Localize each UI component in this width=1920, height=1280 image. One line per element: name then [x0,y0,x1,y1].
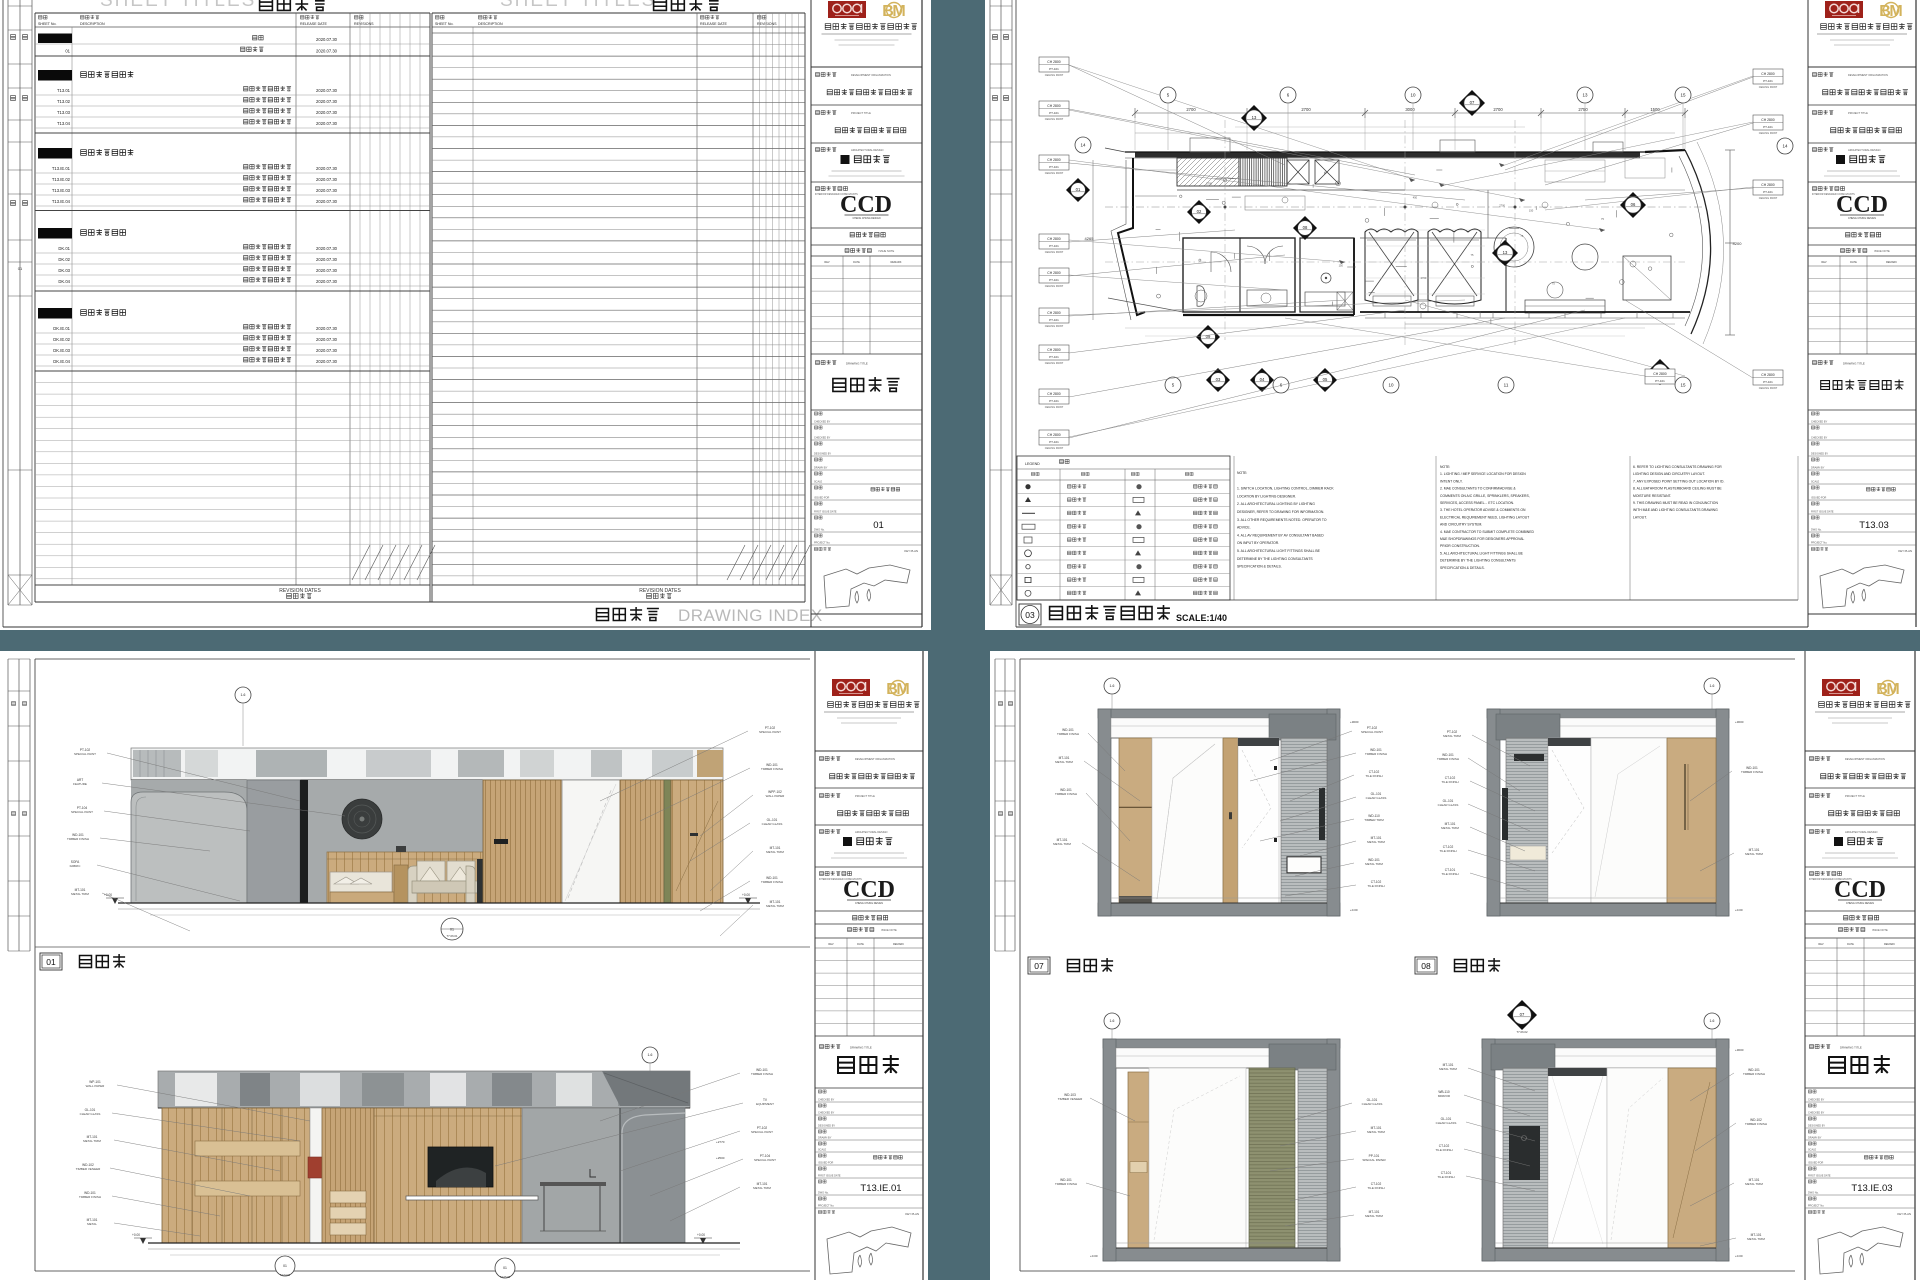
svg-text:TIMBER FINISH: TIMBER FINISH [1055,792,1077,796]
svg-text:REVISION DATES: REVISION DATES [279,588,321,594]
svg-text:SERVICES, ACCESS PANEL... ETC: SERVICES, ACCESS PANEL... ETC LOCATION. [1440,501,1514,505]
svg-text:PT-101: PT-101 [1763,125,1773,129]
svg-text:CH 2800: CH 2800 [1761,118,1774,122]
svg-text:DRAWING TITLE: DRAWING TITLE [846,362,868,366]
svg-text:CHECKED BY: CHECKED BY [1808,1099,1825,1102]
svg-text:SCALE: SCALE [1811,481,1820,484]
svg-text:03: 03 [1025,610,1035,620]
svg-text:CH 2800: CH 2800 [1047,392,1060,396]
svg-text:NOTE:: NOTE: [1440,465,1450,469]
svg-text:5. ALL ARCHITECTURAL LIGHT FIT: 5. ALL ARCHITECTURAL LIGHT FITTINGS SHAL… [1237,549,1321,553]
svg-text:4200: 4200 [1733,241,1743,246]
svg-text:DK.02: DK.02 [58,257,70,262]
svg-text:PROJECT No.: PROJECT No. [814,542,831,545]
svg-text:CEILING PAINT: CEILING PAINT [1759,386,1778,390]
svg-text:13: 13 [1582,93,1588,98]
svg-text:01: 01 [65,49,70,54]
svg-text:13: 13 [1503,250,1508,255]
svg-text:KEY PLAN: KEY PLAN [905,1212,919,1216]
svg-text:CCD: CCD [1834,877,1886,903]
svg-text:+2500: +2500 [716,1156,725,1160]
svg-text:SPECIAL PAINT: SPECIAL PAINT [751,1130,773,1134]
svg-text:PT-101: PT-101 [1049,244,1059,248]
svg-text:ADVICE.: ADVICE. [1237,526,1251,530]
svg-text:8. ALL BATHROOM PLASTERBOARD C: 8. ALL BATHROOM PLASTERBOARD CEILING MUS… [1633,487,1722,491]
svg-text:METAL TRIM: METAL TRIM [1365,1214,1383,1218]
svg-text:T13.IE.02: T13.IE.02 [52,177,71,182]
svg-text:METAL TRIM: METAL TRIM [1367,840,1385,844]
svg-text:REMARK: REMARK [890,260,901,264]
svg-text:2. ALL ARCHITECTURAL LIGHTING: 2. ALL ARCHITECTURAL LIGHTING BY LIGHTIN… [1237,502,1315,506]
svg-text:DEVELOPMENT ORGANIZATION: DEVELOPMENT ORGANIZATION [855,757,895,761]
svg-text:CCD: CCD [1836,192,1888,218]
svg-text:CLEAR GLASS: CLEAR GLASS [762,822,783,826]
svg-text:REV: REV [1818,942,1824,946]
svg-text:4. ALL AV REQUIREMENT BY AV CO: 4. ALL AV REQUIREMENT BY AV CONSULTANT B… [1237,533,1324,537]
svg-text:DESCRIPTION: DESCRIPTION [80,22,105,26]
svg-text:+2770: +2770 [716,1140,725,1144]
svg-text:ELECTRICAL REQUIREMENT NEED, L: ELECTRICAL REQUIREMENT NEED, LIGHTING LA… [1440,515,1529,519]
svg-text:DRAWING INDEX: DRAWING INDEX [678,606,823,625]
svg-text:+3000: +3000 [1735,1048,1744,1052]
svg-text:SPECIFICATION & DETAILS.: SPECIFICATION & DETAILS. [1237,565,1282,569]
svg-text:DRAWING TITLE: DRAWING TITLE [850,1046,872,1050]
svg-text:METAL: METAL [87,1222,97,1226]
svg-text:KEY PLAN: KEY PLAN [904,549,918,553]
svg-text:RELEASE DATE: RELEASE DATE [700,22,727,26]
svg-text:T13.IE.01: T13.IE.01 [52,166,71,171]
svg-text:+0.00: +0.00 [1090,1254,1098,1258]
svg-text:SHEET No.: SHEET No. [435,22,454,26]
svg-text:METAL TRIM: METAL TRIM [1367,1130,1385,1134]
svg-text:SHEET TITLES: SHEET TITLES [100,0,256,11]
svg-text:CEILING PAINT: CEILING PAINT [1045,117,1064,121]
svg-text:2020.07.30: 2020.07.30 [316,268,338,273]
svg-text:CH 2800: CH 2800 [1653,372,1666,376]
svg-text:4. MAE CONTRACTOR TO SUBMIT CO: 4. MAE CONTRACTOR TO SUBMIT COMPLETE COM… [1440,530,1534,534]
svg-text:15: 15 [1680,93,1686,98]
svg-text:TILE FINISH: TILE FINISH [1367,1186,1384,1190]
svg-text:TILE FINISH: TILE FINISH [1365,774,1382,778]
svg-text:SPECIAL PAINT: SPECIAL PAINT [74,752,96,756]
svg-text:METAL TRIM: METAL TRIM [1443,734,1461,738]
svg-text:DEVELOPMENT ORGANIZATION: DEVELOPMENT ORGANIZATION [1848,73,1888,77]
svg-text:2020.07.30: 2020.07.30 [316,348,338,353]
svg-text:DRAWN BY: DRAWN BY [814,467,828,470]
svg-text:15: 15 [1680,383,1686,388]
svg-text:CH 2800: CH 2800 [1761,72,1774,76]
svg-text:TIMBER FINISH: TIMBER FINISH [1055,1182,1077,1186]
svg-text:TIMBER FINISH: TIMBER FINISH [67,837,89,841]
svg-text:CH 2800: CH 2800 [1047,271,1060,275]
svg-text:ARCHITECTURAL DESIGN: ARCHITECTURAL DESIGN [1848,148,1880,152]
svg-text:2700: 2700 [1493,107,1503,112]
svg-text:DK.IE.01: DK.IE.01 [53,326,70,331]
svg-text:INTENT ONLY.: INTENT ONLY. [1440,479,1463,483]
svg-text:TIMBER FINISH: TIMBER FINISH [1743,1072,1765,1076]
svg-text:DWG No.: DWG No. [1808,1192,1819,1195]
svg-text:TIMBER FINISH: TIMBER FINISH [1741,770,1763,774]
svg-text:14: 14 [1782,144,1788,149]
svg-text:1-6: 1-6 [1710,684,1715,688]
svg-text:PROJECT TITLE: PROJECT TITLE [1845,794,1865,798]
svg-text:KEY PLAN: KEY PLAN [1897,1212,1911,1216]
svg-text:METAL TRIM: METAL TRIM [753,1186,771,1190]
svg-text:1-6: 1-6 [241,693,246,697]
svg-text:REVISIONS: REVISIONS [757,22,777,26]
svg-text:ARCHITECTURAL DESIGN: ARCHITECTURAL DESIGN [1845,830,1877,834]
svg-text:PT-101: PT-101 [1049,318,1059,322]
svg-text:DK.IE.04: DK.IE.04 [53,359,70,364]
svg-text:13: 13 [1252,115,1257,120]
svg-text:TILE FINISH: TILE FINISH [1441,780,1458,784]
svg-text:WITH M&E AND LIGHTING CONSULTA: WITH M&E AND LIGHTING CONSULTANTS DRAWIN… [1633,508,1718,512]
svg-text:SPECIAL PAPER: SPECIAL PAPER [1362,1158,1386,1162]
svg-text:PROJECT No.: PROJECT No. [1808,1205,1825,1208]
svg-text:TIMBER FINISH: TIMBER FINISH [79,1195,101,1199]
svg-text:2750: 2750 [1578,107,1588,112]
svg-text:01: 01 [18,266,23,271]
svg-text:T13.03: T13.03 [57,110,71,115]
svg-text:PROJECT No.: PROJECT No. [818,1205,835,1208]
svg-text:01: 01 [503,1266,507,1270]
svg-text:PT-101: PT-101 [1763,190,1773,194]
svg-text:DK.01: DK.01 [58,246,70,251]
svg-text:2700: 2700 [1206,181,1212,185]
svg-text:2020.07.30: 2020.07.30 [316,88,338,93]
svg-text:2020.07.30: 2020.07.30 [316,110,338,115]
svg-text:DWG No.: DWG No. [818,1192,829,1195]
svg-text:LIGHTING DESIGN AND CIRCUITRY: LIGHTING DESIGN AND CIRCUITRY LAYOUT. [1633,472,1705,476]
svg-text:2020.07.30: 2020.07.30 [316,199,338,204]
svg-text:+3000: +3000 [1350,720,1359,724]
svg-text:CLEAR GLASS: CLEAR GLASS [1366,796,1387,800]
svg-text:CLEAR GLASS: CLEAR GLASS [80,1112,101,1116]
svg-text:TIMBER FINISH: TIMBER FINISH [751,1072,773,1076]
svg-text:5. ALL ARCHITECTURAL LIGHT FIT: 5. ALL ARCHITECTURAL LIGHT FITTINGS SHAL… [1440,551,1524,555]
svg-text:DATE: DATE [853,260,860,264]
svg-text:ISSUED FOR: ISSUED FOR [1811,497,1826,500]
svg-text:2020.07.30: 2020.07.30 [316,99,338,104]
svg-text:METAL TRIM: METAL TRIM [1439,1067,1457,1071]
svg-text:CEILING PAINT: CEILING PAINT [1759,131,1778,135]
svg-text:CH 2800: CH 2800 [1761,183,1774,187]
svg-text:CCD: CCD [843,877,895,903]
svg-text:PROJECT TITLE: PROJECT TITLE [851,111,871,115]
svg-text:REMARK: REMARK [1886,260,1897,264]
svg-text:ISSUE NOTE: ISSUE NOTE [879,249,895,253]
svg-text:T13.01: T13.01 [57,88,71,93]
svg-text:LAYOUT.: LAYOUT. [1633,515,1647,519]
svg-text:FIRST ISSUE DATE: FIRST ISSUE DATE [1808,1175,1831,1178]
svg-text:METAL TRIM: METAL TRIM [1053,842,1071,846]
svg-text:CEILING PAINT: CEILING PAINT [1045,361,1064,365]
svg-text:SCALE: SCALE [1808,1149,1817,1152]
svg-text:2700: 2700 [1301,107,1311,112]
svg-text:ISSUE NOTE: ISSUE NOTE [1872,928,1888,932]
svg-text:+3000: +3000 [1735,720,1744,724]
svg-text:EQUIPMENT: EQUIPMENT [756,1102,774,1106]
svg-text:DWG No.: DWG No. [814,529,825,532]
svg-text:TIMBER TRIM: TIMBER TRIM [1364,818,1384,822]
svg-text:METAL TRIM: METAL TRIM [766,850,784,854]
svg-text:T13.03: T13.03 [1859,520,1889,531]
svg-text:PT-101: PT-101 [1763,79,1773,83]
svg-text:METAL TRIM: METAL TRIM [766,904,784,908]
svg-text:MIRROR: MIRROR [1438,1094,1451,1098]
svg-text:CEILING PAINT: CEILING PAINT [1759,196,1778,200]
svg-text:2020.07.30: 2020.07.30 [316,188,338,193]
svg-text:ISSUED FOR: ISSUED FOR [818,1162,833,1165]
svg-text:2020.07.30: 2020.07.30 [316,166,338,171]
svg-text:CHECKED BY: CHECKED BY [818,1099,835,1102]
svg-text:CHECKED BY: CHECKED BY [1808,1112,1825,1115]
svg-text:2020.07.30: 2020.07.30 [316,359,338,364]
svg-text:TIMBER FINISH: TIMBER FINISH [761,880,783,884]
svg-text:T13.IE.03: T13.IE.03 [1851,1183,1892,1194]
svg-text:3. ALL OTHER REQUIREMENTS NOTE: 3. ALL OTHER REQUIREMENTS NOTED. OPERATO… [1237,518,1327,522]
svg-text:+0.00: +0.00 [697,1233,705,1237]
svg-text:KEY PLAN: KEY PLAN [1898,549,1912,553]
svg-text:REV: REV [824,260,830,264]
svg-text:DESIGNED BY: DESIGNED BY [814,453,831,456]
svg-text:ISSUED FOR: ISSUED FOR [814,497,829,500]
svg-text:DESCRIPTION: DESCRIPTION [478,22,503,26]
svg-text:DRAWN BY: DRAWN BY [1811,467,1825,470]
svg-text:DEVELOPMENT ORGANIZATION: DEVELOPMENT ORGANIZATION [1845,757,1885,761]
svg-text:LEGEND: LEGEND [1025,462,1040,466]
svg-text:DATE: DATE [1850,260,1857,264]
svg-text:10: 10 [1388,383,1394,388]
svg-text:ISSUE NOTE: ISSUE NOTE [881,928,897,932]
svg-text:CLEAR GLASS: CLEAR GLASS [1436,1121,1457,1125]
svg-text:DRAWN BY: DRAWN BY [1808,1137,1822,1140]
svg-text:2020.07.30: 2020.07.30 [316,37,338,42]
svg-text:CHECKED BY: CHECKED BY [814,421,831,424]
svg-text:CHENG CHUNG DESIGN: CHENG CHUNG DESIGN [853,217,881,220]
svg-text:PT-101: PT-101 [1049,278,1059,282]
svg-text:450: 450 [1413,196,1418,200]
svg-text:METAL TRIM: METAL TRIM [1745,852,1763,856]
svg-text:T7.06.01: T7.06.01 [446,934,457,938]
svg-text:SPECIAL PAINT: SPECIAL PAINT [71,810,93,814]
svg-text:DESIGNED BY: DESIGNED BY [1808,1125,1825,1128]
svg-text:04: 04 [1260,377,1265,382]
svg-text:T13.IE.03: T13.IE.03 [52,188,71,193]
svg-text:2020.07.30: 2020.07.30 [316,337,338,342]
svg-text:DWG No.: DWG No. [1811,529,1822,532]
svg-text:METAL TRIM: METAL TRIM [1055,760,1073,764]
svg-text:TILE FINISH: TILE FINISH [1441,872,1458,876]
svg-text:METAL TRIM: METAL TRIM [1745,1182,1763,1186]
svg-text:CEILING PAINT: CEILING PAINT [1045,73,1064,77]
svg-text:TIMBER FINISH: TIMBER FINISH [1365,752,1387,756]
svg-text:METAL TRIM: METAL TRIM [1747,1237,1765,1241]
svg-text:7. ANY EXPOSED POINT SETTING O: 7. ANY EXPOSED POINT SETTING OUT LOCATIO… [1633,479,1725,483]
svg-text:ARCHITECTURAL DESIGN: ARCHITECTURAL DESIGN [855,830,887,834]
svg-text:DK.03: DK.03 [58,268,70,273]
svg-text:CEILING PAINT: CEILING PAINT [1045,250,1064,254]
svg-text:MOISTURE RESISTANT.: MOISTURE RESISTANT. [1633,494,1671,498]
svg-text:AND CIRCUITRY SYSTEM.: AND CIRCUITRY SYSTEM. [1440,523,1482,527]
svg-text:REMARK: REMARK [1884,942,1895,946]
svg-text:PT-101: PT-101 [1049,111,1059,115]
svg-text:CHECKED BY: CHECKED BY [1811,437,1828,440]
svg-text:T2.04.02: T2.04.02 [280,1273,291,1277]
svg-text:FEATURE: FEATURE [73,782,87,786]
svg-text:SCALE:1/40: SCALE:1/40 [1176,613,1227,623]
svg-text:ARCHITECTURAL DESIGN: ARCHITECTURAL DESIGN [851,148,883,152]
svg-text:1-6: 1-6 [1710,1019,1715,1023]
svg-text:PT-101: PT-101 [1049,67,1059,71]
svg-text:CHECKED BY: CHECKED BY [1811,421,1828,424]
svg-text:07: 07 [1034,961,1044,971]
svg-text:CEILING PAINT: CEILING PAINT [1045,446,1064,450]
svg-text:REVISIONS: REVISIONS [354,22,374,26]
svg-text:01: 01 [283,1264,287,1268]
svg-text:SPECIFICATION & DETAILS.: SPECIFICATION & DETAILS. [1440,566,1485,570]
svg-text:2020.07.30: 2020.07.30 [316,326,338,331]
svg-text:10: 10 [1410,93,1416,98]
svg-text:CH 2800: CH 2800 [1047,433,1060,437]
svg-text:08: 08 [1303,225,1308,230]
svg-text:08: 08 [1421,961,1431,971]
svg-text:DATE: DATE [857,942,864,946]
svg-text:CEILING PAINT: CEILING PAINT [1045,171,1064,175]
svg-text:PT-101: PT-101 [1049,165,1059,169]
svg-text:+0.00: +0.00 [1735,1254,1743,1258]
svg-text:CH 2800: CH 2800 [1761,373,1774,377]
svg-text:T7.06.02: T7.06.02 [1516,1030,1527,1034]
svg-text:CEILING PAINT: CEILING PAINT [1045,405,1064,409]
svg-text:DESIGNED BY: DESIGNED BY [818,1125,835,1128]
svg-text:DESIGNED BY: DESIGNED BY [1811,453,1828,456]
svg-text:CH 2800: CH 2800 [1047,311,1060,315]
svg-text:07: 07 [1470,100,1475,105]
svg-text:SHEET No.: SHEET No. [38,22,57,26]
svg-text:FABRIC: FABRIC [70,864,82,868]
svg-text:2020.07.30: 2020.07.30 [316,49,338,54]
svg-text:PT-101: PT-101 [1763,380,1773,384]
svg-text:SCALE: SCALE [814,481,823,484]
svg-text:CCD: CCD [840,192,892,218]
svg-text:T13.02: T13.02 [57,99,71,104]
svg-text:REMARK: REMARK [893,942,904,946]
svg-text:T13.IE.04: T13.IE.04 [52,199,71,204]
svg-text:CHECKED BY: CHECKED BY [814,437,831,440]
svg-text:CH 2800: CH 2800 [1047,237,1060,241]
svg-text:150: 150 [1529,209,1534,213]
svg-text:01: 01 [873,520,884,531]
svg-text:COMMENTS ON A/C GRILLE, SPRINK: COMMENTS ON A/C GRILLE, SPRINKLERS, SPEA… [1440,494,1530,498]
svg-text:1. LIGHTING / MEP SERVICE LOCA: 1. LIGHTING / MEP SERVICE LOCATION FOR D… [1440,472,1526,476]
svg-text:1-6: 1-6 [1110,1019,1115,1023]
svg-text:01: 01 [46,957,56,967]
svg-text:FIRST ISSUE DATE: FIRST ISSUE DATE [818,1175,841,1178]
svg-text:REV: REV [828,942,834,946]
svg-text:3000: 3000 [1405,107,1415,112]
svg-text:METAL TRIM: METAL TRIM [1441,826,1459,830]
svg-text:TIMBER FINISH: TIMBER FINISH [1437,757,1459,761]
svg-text:TILE FINISH: TILE FINISH [1439,849,1456,853]
svg-text:CEILING PAINT: CEILING PAINT [1759,85,1778,89]
svg-text:ON INPUT BY OPERATOR.: ON INPUT BY OPERATOR. [1237,541,1279,545]
svg-text:T2.05.02: T2.05.02 [500,1275,511,1279]
svg-text:ISSUE NOTE: ISSUE NOTE [1874,249,1890,253]
svg-text:07: 07 [1520,1012,1525,1017]
svg-text:11: 11 [1504,383,1509,388]
svg-text:PT-101: PT-101 [1655,379,1665,383]
svg-text:1-6: 1-6 [648,1053,653,1057]
svg-text:FIRST ISSUE DATE: FIRST ISSUE DATE [1811,511,1834,514]
svg-text:CLEAR GLASS: CLEAR GLASS [1438,803,1459,807]
svg-text:01: 01 [450,927,454,931]
svg-text:01: 01 [1076,187,1081,192]
svg-text:DK.IE.02: DK.IE.02 [53,337,70,342]
svg-text:+0.00: +0.00 [132,1233,140,1237]
svg-text:+0.00: +0.00 [1735,908,1743,912]
svg-text:03: 03 [1216,377,1221,382]
svg-text:LOCATION BY LIGHTING DESIGNER.: LOCATION BY LIGHTING DESIGNER. [1237,494,1296,498]
svg-text:CHENG CHUNG DESIGN: CHENG CHUNG DESIGN [1848,217,1876,220]
svg-text:DRAWING TITLE: DRAWING TITLE [1840,1046,1862,1050]
svg-text:2020.07.30: 2020.07.30 [316,257,338,262]
svg-text:2020.07.30: 2020.07.30 [316,121,338,126]
svg-text:2. MAE CONSULTANTS TO CONFIRM/: 2. MAE CONSULTANTS TO CONFIRM/ADVISE & [1440,487,1516,491]
svg-text:6. REFER TO LIGHTING CONSULTAN: 6. REFER TO LIGHTING CONSULTANTS DRAWING… [1633,465,1722,469]
svg-text:14: 14 [1080,143,1086,148]
svg-text:TIMBER FINISH: TIMBER FINISH [761,767,783,771]
svg-text:WALL PAPER: WALL PAPER [86,1084,106,1088]
svg-text:SCALE: SCALE [818,1149,827,1152]
svg-text:METAL TRIM: METAL TRIM [83,1139,101,1143]
svg-text:SHEET TITLES: SHEET TITLES [500,0,656,11]
svg-text:DESIGNER, REFER TO DRAWING FOR: DESIGNER, REFER TO DRAWING FOR INFORMATI… [1237,510,1324,514]
svg-text:TIMBER FINISH: TIMBER FINISH [1745,1122,1767,1126]
svg-text:ISSUED FOR: ISSUED FOR [1808,1162,1823,1165]
svg-text:02: 02 [1197,209,1202,214]
svg-text:DK.IE.03: DK.IE.03 [53,348,70,353]
svg-text:CH 2800: CH 2800 [1047,60,1060,64]
svg-text:T13.04: T13.04 [57,121,71,126]
svg-text:PT-101: PT-101 [1049,440,1059,444]
svg-text:CEILING PAINT: CEILING PAINT [1045,324,1064,328]
svg-text:CH 2800: CH 2800 [1047,348,1060,352]
svg-text:DETERMINE BY THE LIGHTING CONS: DETERMINE BY THE LIGHTING CONSULTANTS [1440,559,1516,563]
svg-text:+0.00: +0.00 [1350,908,1358,912]
svg-text:CHENG CHUNG DESIGN: CHENG CHUNG DESIGN [1846,902,1874,905]
svg-text:2020.07.30: 2020.07.30 [316,279,338,284]
svg-text:TIMBER FINISH: TIMBER FINISH [1057,732,1079,736]
svg-text:PT-101: PT-101 [1049,399,1059,403]
svg-text:PROJECT TITLE: PROJECT TITLE [855,794,875,798]
svg-text:DK.04: DK.04 [58,279,70,284]
svg-text:PROJECT No.: PROJECT No. [1811,542,1828,545]
svg-text:CH 2800: CH 2800 [1047,158,1060,162]
svg-text:2020.07.30: 2020.07.30 [316,246,338,251]
svg-text:2020.07.30: 2020.07.30 [316,177,338,182]
svg-text:06: 06 [1631,202,1636,207]
svg-text:M&E SHOPDRAWINGS FOR DESIGNERS: M&E SHOPDRAWINGS FOR DESIGNERS APPROVAL [1440,537,1524,541]
svg-text:1-6: 1-6 [1110,684,1115,688]
svg-text:3. THE HOTEL OPERATOR ADVISE &: 3. THE HOTEL OPERATOR ADVISE & COMMENTS … [1440,508,1526,512]
svg-text:SPECIAL PAINT: SPECIAL PAINT [1361,730,1383,734]
svg-text:DETERMINE BY THE LIGHTING CONS: DETERMINE BY THE LIGHTING CONSULTANTS [1237,557,1313,561]
svg-text:FIRST ISSUE DATE: FIRST ISSUE DATE [814,511,837,514]
svg-text:TIMBER VENEER: TIMBER VENEER [1058,1097,1083,1101]
svg-text:RELEASE DATE: RELEASE DATE [300,22,327,26]
svg-text:WALL PAPER: WALL PAPER [766,794,786,798]
